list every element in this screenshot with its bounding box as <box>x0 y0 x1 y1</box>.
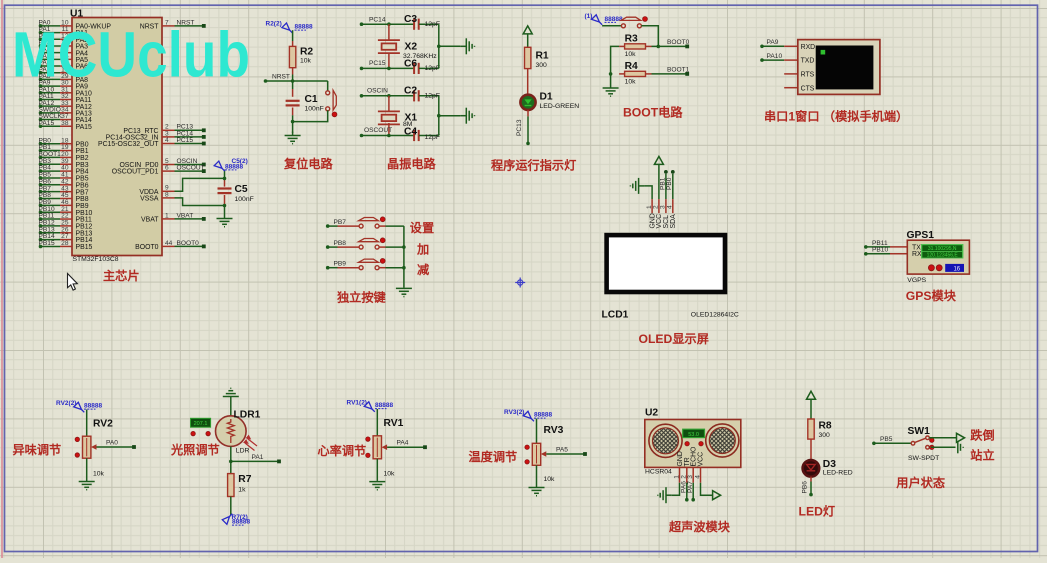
svg-text:RTS: RTS <box>801 72 815 79</box>
svg-text:PB8: PB8 <box>334 240 347 247</box>
svg-text:VBAT: VBAT <box>177 212 194 219</box>
svg-text:用户状态: 用户状态 <box>895 475 946 490</box>
svg-text:10k: 10k <box>93 471 105 478</box>
svg-text:TXD: TXD <box>801 58 815 65</box>
svg-text:VGPS: VGPS <box>907 277 926 284</box>
svg-text:MCUclub: MCUclub <box>12 19 250 91</box>
svg-text:LCD1: LCD1 <box>602 310 629 321</box>
svg-text:C3: C3 <box>404 14 417 25</box>
svg-text:R2(2): R2(2) <box>266 21 282 28</box>
svg-text:GPS模块: GPS模块 <box>906 288 957 303</box>
svg-text:SDA: SDA <box>670 214 677 229</box>
svg-text:RV2(2): RV2(2) <box>56 400 76 407</box>
svg-text:2: 2 <box>653 205 660 209</box>
svg-text:温度调节: 温度调节 <box>469 449 518 464</box>
svg-text:U2: U2 <box>645 408 658 419</box>
svg-text:VCC: VCC <box>656 214 663 229</box>
svg-text:BOOT0: BOOT0 <box>177 240 200 247</box>
svg-text:300: 300 <box>536 62 548 69</box>
svg-text:88888: 88888 <box>225 163 243 170</box>
svg-text:心率调节: 心率调节 <box>318 443 367 458</box>
svg-text:异味调节: 异味调节 <box>13 442 62 457</box>
svg-text:OSCOUT: OSCOUT <box>364 127 392 134</box>
svg-text:X2: X2 <box>405 42 418 53</box>
svg-text:程序运行指示灯: 程序运行指示灯 <box>491 158 576 173</box>
svg-text:PA4: PA4 <box>397 440 409 447</box>
svg-text:PA15: PA15 <box>76 124 93 131</box>
svg-text:VCC: VCC <box>697 452 704 467</box>
svg-text:PA0: PA0 <box>106 440 118 447</box>
svg-text:OLED显示屏: OLED显示屏 <box>639 332 709 346</box>
svg-text:主芯片: 主芯片 <box>103 268 140 283</box>
svg-text:R7: R7 <box>238 474 251 485</box>
svg-text:R3: R3 <box>625 34 638 45</box>
svg-text:C6: C6 <box>404 59 417 70</box>
svg-text:88888: 88888 <box>534 412 552 419</box>
svg-text:88888: 88888 <box>605 16 623 23</box>
svg-text:串口1窗口 （模拟手机端）: 串口1窗口 （模拟手机端） <box>764 109 908 124</box>
svg-text:PB7: PB7 <box>334 219 347 226</box>
svg-text:PB5: PB5 <box>880 436 893 443</box>
svg-text:10k: 10k <box>544 476 556 483</box>
svg-text:LDR: LDR <box>236 447 250 454</box>
svg-text:OLED12864I2C: OLED12864I2C <box>691 312 739 319</box>
svg-text:减: 减 <box>417 262 430 277</box>
svg-text:PB15: PB15 <box>76 244 93 251</box>
svg-text:RV3(2): RV3(2) <box>504 409 524 416</box>
svg-text:PA9: PA9 <box>767 39 779 46</box>
svg-text:RV1(2): RV1(2) <box>347 400 367 407</box>
svg-text:207.1: 207.1 <box>194 421 208 427</box>
svg-text:RXD: RXD <box>801 44 816 51</box>
svg-text:R1: R1 <box>536 51 549 62</box>
svg-text:STM32F103C8: STM32F103C8 <box>73 256 119 263</box>
svg-text:10k: 10k <box>384 471 396 478</box>
svg-text:PC14: PC14 <box>369 17 386 24</box>
svg-text:RV3: RV3 <box>544 425 564 436</box>
svg-text:复位电路: 复位电路 <box>283 156 334 171</box>
svg-text:C4: C4 <box>404 127 417 138</box>
svg-text:300: 300 <box>819 432 831 439</box>
svg-text:LED灯: LED灯 <box>799 504 836 519</box>
svg-text:R8: R8 <box>819 421 832 432</box>
svg-text:独立按键: 独立按键 <box>336 290 387 305</box>
svg-text:PB0: PB0 <box>666 177 673 190</box>
svg-text:RX: RX <box>912 251 922 258</box>
svg-text:加: 加 <box>416 242 429 257</box>
svg-text:LDR1: LDR1 <box>234 410 261 421</box>
svg-text:1k: 1k <box>238 487 246 494</box>
svg-text:PA15: PA15 <box>39 120 55 127</box>
svg-text:10k: 10k <box>300 58 312 65</box>
svg-text:NRST: NRST <box>272 73 290 80</box>
svg-text:PC15: PC15 <box>369 60 386 67</box>
svg-text:VBAT: VBAT <box>141 217 159 224</box>
svg-text:PC15: PC15 <box>177 137 194 144</box>
svg-text:晶振电路: 晶振电路 <box>387 156 437 171</box>
svg-text:53.0: 53.0 <box>688 432 699 438</box>
svg-text:PA5: PA5 <box>556 447 568 454</box>
svg-text:设置: 设置 <box>410 220 434 235</box>
svg-text:站立: 站立 <box>970 447 994 462</box>
svg-text:PB15: PB15 <box>39 240 55 247</box>
svg-text:PC13: PC13 <box>516 119 523 136</box>
svg-text:SW1: SW1 <box>908 426 931 437</box>
svg-text:RV1: RV1 <box>384 418 404 429</box>
svg-text:SW-SPDT: SW-SPDT <box>908 455 939 462</box>
svg-text:88888: 88888 <box>295 24 313 31</box>
svg-text:HCSR04: HCSR04 <box>645 469 672 476</box>
svg-text:88888: 88888 <box>84 403 102 410</box>
svg-text:PA7: PA7 <box>687 481 694 493</box>
svg-text:C1: C1 <box>305 94 318 105</box>
svg-text:PA1: PA1 <box>252 454 264 461</box>
svg-text:12pF: 12pF <box>425 65 441 72</box>
svg-text:R2: R2 <box>300 47 313 58</box>
svg-text:4: 4 <box>165 137 169 144</box>
svg-text:PC15-OSC32_OUT: PC15-OSC32_OUT <box>98 141 159 148</box>
svg-text:12pF: 12pF <box>425 134 441 141</box>
svg-text:OSCOUT_PD1: OSCOUT_PD1 <box>112 169 159 176</box>
svg-text:BOOT电路: BOOT电路 <box>623 105 683 120</box>
svg-text:31.100295,N: 31.100295,N <box>928 246 957 252</box>
svg-text:CTS: CTS <box>801 85 815 92</box>
svg-text:12pF: 12pF <box>425 21 441 28</box>
svg-text:GPS1: GPS1 <box>907 230 935 241</box>
svg-text:3: 3 <box>687 475 694 479</box>
svg-text:D1: D1 <box>540 92 553 103</box>
svg-text:6: 6 <box>165 165 169 172</box>
svg-text:38: 38 <box>61 120 69 127</box>
svg-text:PA10: PA10 <box>767 53 783 60</box>
svg-text:4: 4 <box>694 475 701 479</box>
svg-text:OSCOUT: OSCOUT <box>177 165 205 172</box>
svg-text:100nF: 100nF <box>235 196 254 203</box>
svg-text:88888: 88888 <box>375 402 393 409</box>
svg-text:跌倒: 跌倒 <box>970 427 994 442</box>
svg-text:VSSA: VSSA <box>140 196 159 203</box>
svg-text:PB6: PB6 <box>802 481 809 494</box>
svg-text:C2: C2 <box>404 86 417 97</box>
svg-text:OSCIN: OSCIN <box>367 87 388 94</box>
svg-text:100nF: 100nF <box>305 106 324 113</box>
svg-text:120.123456,E: 120.123456,E <box>927 253 959 259</box>
svg-text:超声波模块: 超声波模块 <box>668 519 731 534</box>
svg-text:10k: 10k <box>625 79 637 86</box>
svg-text:1: 1 <box>165 212 169 219</box>
svg-text:10k: 10k <box>625 51 637 58</box>
svg-text:PB9: PB9 <box>334 260 347 267</box>
svg-text:R4: R4 <box>625 61 638 72</box>
svg-text:LED-RED: LED-RED <box>823 469 853 476</box>
svg-text:LED-GREEN: LED-GREEN <box>540 103 580 110</box>
svg-text:1: 1 <box>673 475 680 479</box>
svg-text:PB10: PB10 <box>872 247 888 254</box>
svg-text:4: 4 <box>667 205 674 209</box>
svg-text:88888: 88888 <box>232 519 250 526</box>
svg-text:16: 16 <box>953 266 960 272</box>
svg-text:C5: C5 <box>235 184 248 195</box>
svg-text:BOOT0: BOOT0 <box>135 244 159 251</box>
svg-text:光照调节: 光照调节 <box>170 442 220 457</box>
svg-text:28: 28 <box>61 240 69 247</box>
svg-text:12pF: 12pF <box>425 92 441 99</box>
svg-text:44: 44 <box>165 240 173 247</box>
svg-text:RV2: RV2 <box>93 419 113 430</box>
